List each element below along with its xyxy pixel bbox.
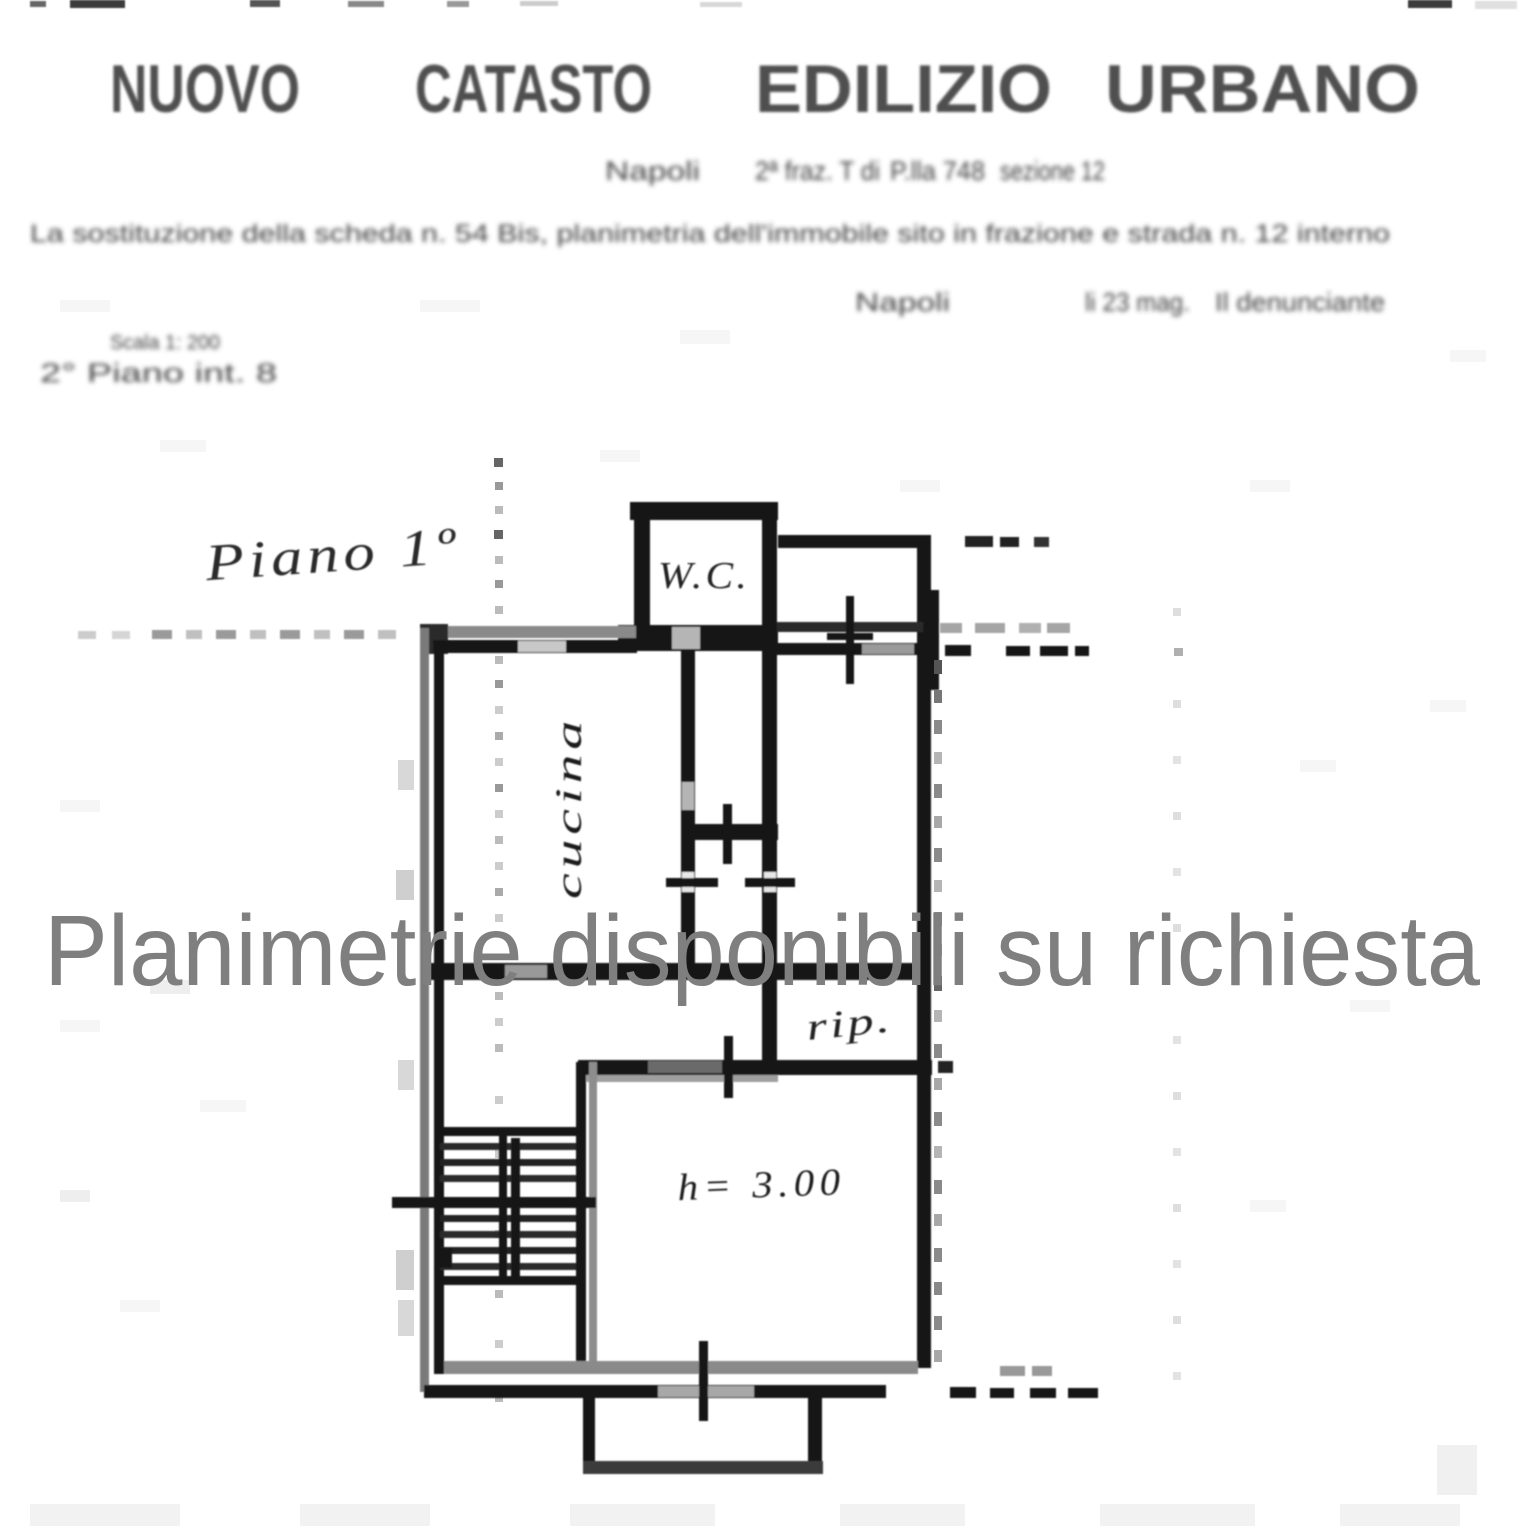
svg-text:P.lla 748: P.lla 748 bbox=[890, 156, 985, 186]
svg-text:URBANO: URBANO bbox=[1105, 51, 1420, 127]
svg-text:h= 3.00: h= 3.00 bbox=[677, 1161, 846, 1209]
svg-text:La sostituzione della scheda n: La sostituzione della scheda n. 54 Bis, … bbox=[30, 220, 1390, 248]
svg-text:cucina: cucina bbox=[549, 716, 590, 899]
svg-text:Scala 1: 200: Scala 1: 200 bbox=[110, 332, 220, 354]
svg-text:NUOVO: NUOVO bbox=[110, 51, 300, 127]
svg-text:li 23 mag.: li 23 mag. bbox=[1085, 287, 1190, 317]
svg-text:sezione 12: sezione 12 bbox=[1000, 156, 1105, 186]
svg-text:W.C.: W.C. bbox=[658, 555, 750, 597]
svg-text:2° Piano int. 8: 2° Piano int. 8 bbox=[40, 358, 277, 388]
svg-text:Il denunciante: Il denunciante bbox=[1215, 287, 1385, 317]
svg-text:Planimetrie disponibili su ric: Planimetrie disponibili su richiesta bbox=[44, 895, 1480, 1007]
svg-text:CATASTO: CATASTO bbox=[415, 51, 652, 127]
svg-text:2ª fraz. T di: 2ª fraz. T di bbox=[755, 156, 880, 186]
svg-text:EDILIZIO: EDILIZIO bbox=[755, 51, 1052, 127]
svg-text:Napoli: Napoli bbox=[605, 156, 700, 186]
svg-text:Napoli: Napoli bbox=[855, 287, 950, 317]
